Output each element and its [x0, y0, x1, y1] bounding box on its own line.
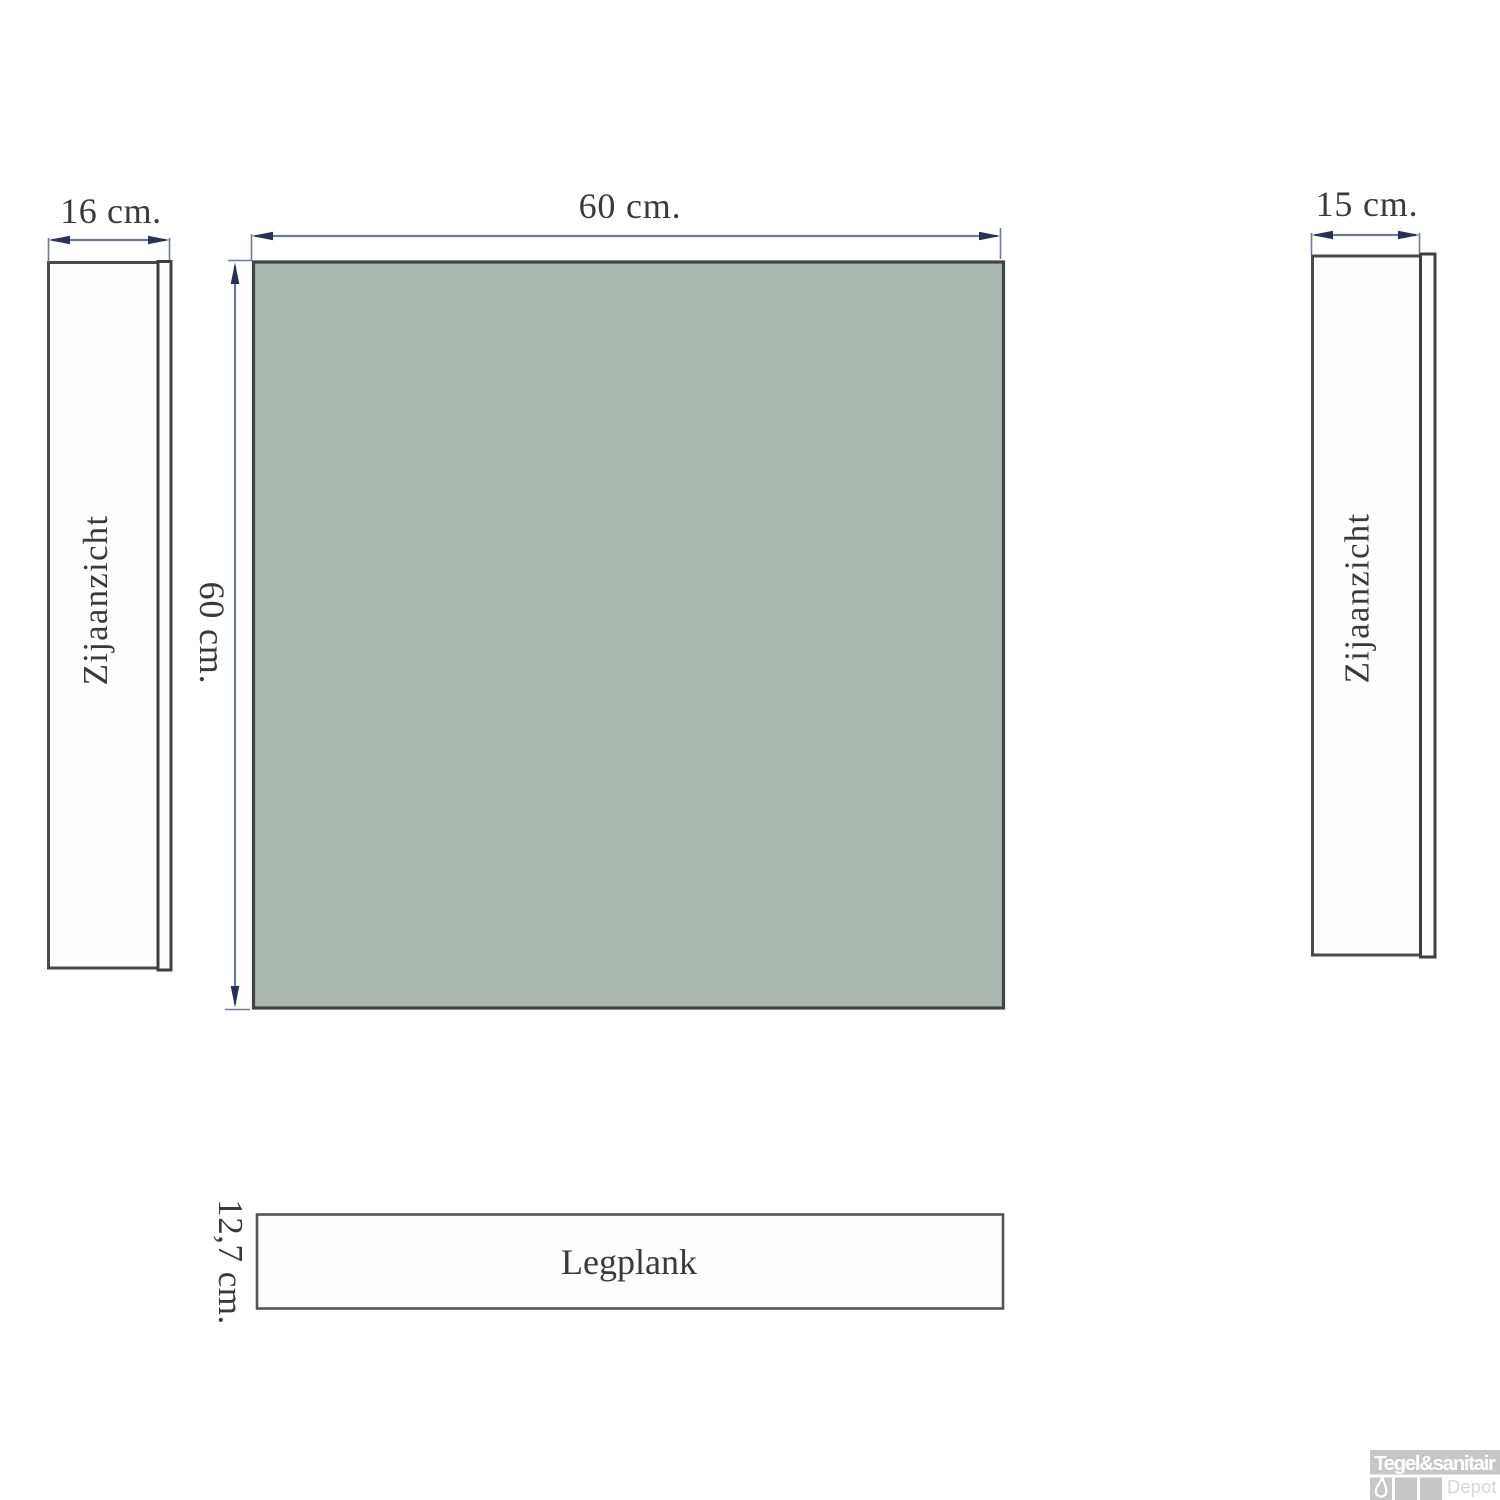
svg-text:Zijaanzicht: Zijaanzicht: [76, 515, 115, 686]
svg-text:Depot: Depot: [1447, 1476, 1496, 1497]
svg-text:Legplank: Legplank: [561, 1242, 697, 1282]
svg-text:12,7 cm.: 12,7 cm.: [211, 1199, 250, 1325]
svg-text:60 cm.: 60 cm.: [192, 582, 232, 685]
svg-text:Tegel&sanitair: Tegel&sanitair: [1374, 1452, 1496, 1475]
svg-text:60 cm.: 60 cm.: [579, 186, 682, 226]
svg-text:Zijaanzicht: Zijaanzicht: [1338, 513, 1377, 684]
svg-text:16 cm.: 16 cm.: [60, 191, 162, 231]
svg-text:15 cm.: 15 cm.: [1316, 184, 1419, 224]
